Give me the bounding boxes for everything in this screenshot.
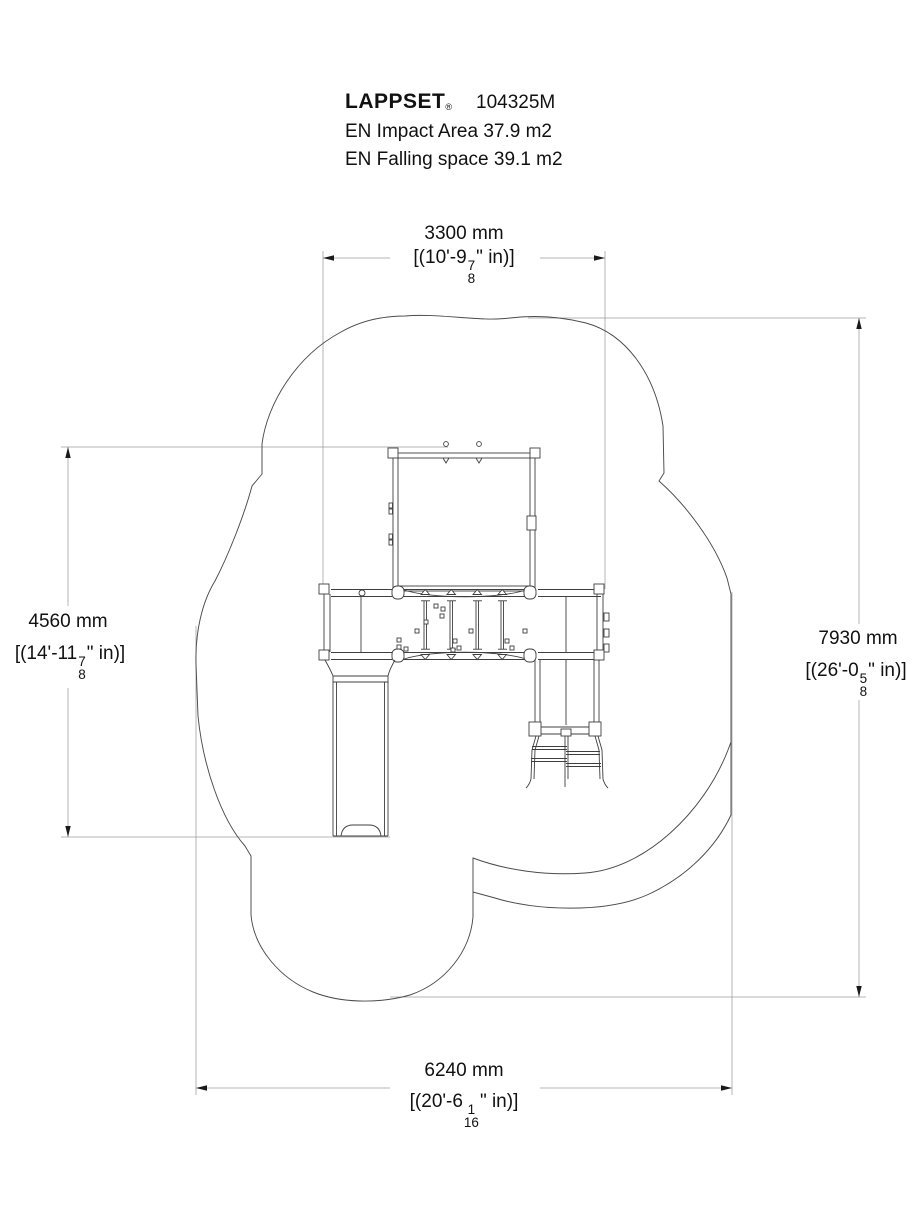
dim-right-imperial: [(26'-058" in)] (802, 660, 909, 698)
dim-bottom-fraction: 116 (464, 1104, 479, 1129)
impact-area-boundary (473, 742, 731, 892)
falling-space-label: EN Falling space 39.1 m2 (345, 149, 563, 171)
dim-right-fraction: 58 (860, 673, 868, 698)
dim-bottom-imperial: [(20'-6116" in)] (407, 1091, 522, 1129)
dim-left-fraction: 78 (78, 656, 86, 681)
impact-area-label: EN Impact Area 37.9 m2 (345, 121, 552, 143)
dim-bottom-metric: 6240 mm (424, 1060, 503, 1082)
dim-top-imperial: [(10'-978" in)] (410, 247, 517, 285)
left-platform (319, 584, 392, 660)
plan-drawing (0, 0, 920, 1226)
dim-right-metric: 7930 mm (818, 628, 897, 650)
fixing-plates (397, 604, 527, 652)
falling-space-outline (196, 315, 731, 1001)
bridge-planks (421, 590, 507, 660)
dim-left-metric: 4560 mm (28, 611, 107, 633)
right-platform (538, 584, 609, 660)
bridge (392, 586, 536, 662)
tower-house (388, 442, 540, 591)
model-number: 104325M (476, 92, 555, 113)
drawing-sheet: LAPPSET®104325M EN Impact Area 37.9 m2 E… (0, 0, 920, 1226)
dim-left-imperial: [(14'-1178" in)] (12, 643, 128, 681)
dim-top-fraction: 78 (468, 260, 476, 285)
dimension-lines (61, 251, 866, 1095)
title-block: LAPPSET®104325M (345, 90, 555, 114)
equipment-plan (319, 442, 609, 836)
rope-climber (526, 660, 608, 788)
registered-mark: ® (445, 102, 452, 112)
dim-top-metric: 3300 mm (424, 223, 503, 245)
brand-logo: LAPPSET (345, 90, 445, 113)
slide (325, 660, 395, 836)
